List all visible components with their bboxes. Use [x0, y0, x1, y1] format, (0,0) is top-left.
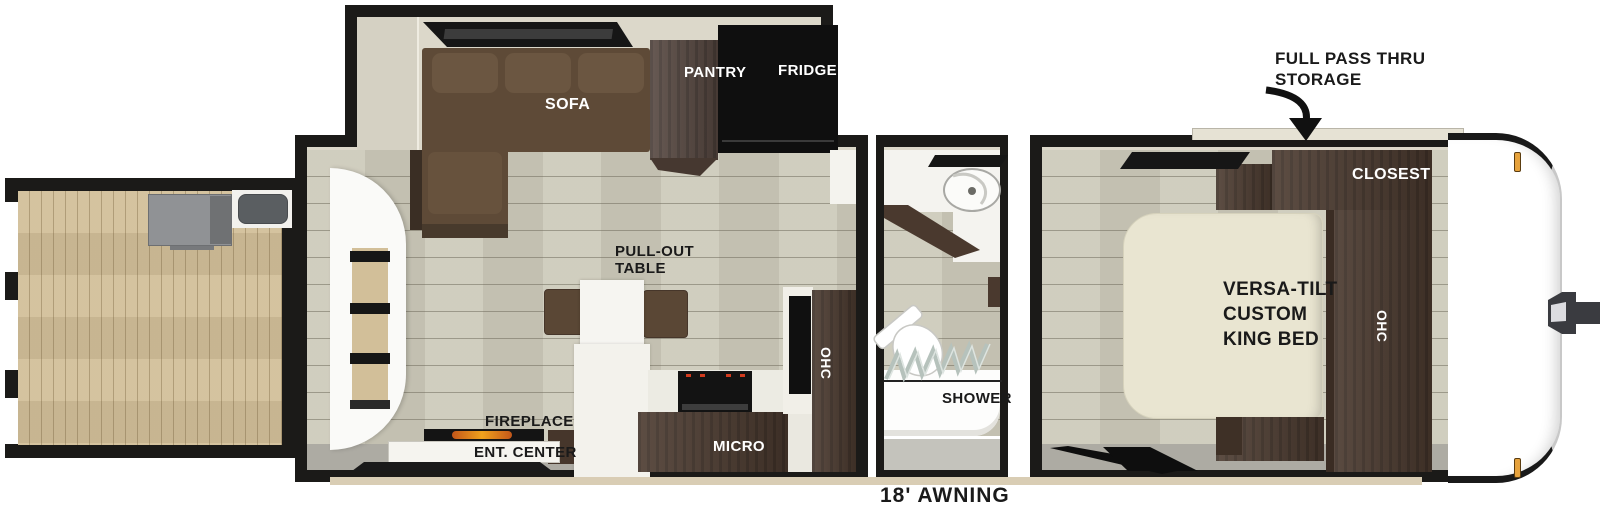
fireplace-flame	[452, 431, 512, 439]
outdoor-grill-base	[170, 246, 214, 250]
rear-door-glass	[352, 248, 388, 408]
king-bed-label: VERSA-TILTCUSTOMKING BED	[1123, 277, 1323, 327]
pass-thru-hatch	[1192, 128, 1464, 140]
front-cap	[1448, 133, 1562, 483]
stove-knob	[740, 374, 745, 377]
stove-front	[682, 404, 748, 410]
stove-knob	[700, 374, 705, 377]
pull-out-table	[580, 280, 644, 346]
bath-vanity-column	[953, 210, 1000, 262]
awning-rail	[330, 477, 1422, 485]
rear-door-bar	[350, 251, 390, 262]
sofa-back-cushion	[505, 53, 571, 93]
outdoor-grill-side	[210, 196, 231, 244]
storage-arrow	[1266, 90, 1306, 122]
stove-knob	[726, 374, 731, 377]
wardrobe-shadow-edge	[1326, 210, 1334, 472]
rear-door-bar	[350, 353, 390, 364]
fridge	[718, 25, 838, 153]
storage-annotation: FULL PASS THRUSTORAGE	[1160, 48, 1390, 69]
deck-railing-gap	[5, 300, 18, 370]
pull-out-table-label: PULL-OUTTABLE	[545, 243, 685, 260]
floorplan: SOFA PANTRY FRIDGE PULL-OUTTABLE MICRO O…	[0, 0, 1600, 510]
bath-sink-drain	[968, 187, 976, 195]
shower-floor-edge	[884, 436, 1000, 470]
outdoor-sink	[238, 194, 288, 224]
deck-railing-gap	[5, 398, 18, 444]
ent-center-base	[352, 462, 552, 471]
dinette-chair	[643, 290, 688, 338]
rear-door-bar	[350, 303, 390, 314]
marker-light	[1514, 152, 1521, 172]
fridge-vent-line	[722, 140, 834, 142]
nightstand	[1216, 164, 1274, 210]
sofa-back-cushion	[578, 53, 644, 93]
stove-knob	[686, 374, 691, 377]
pantry-cabinet	[650, 40, 718, 160]
sofa-back-cushion	[432, 53, 498, 93]
kitchen-floor-gap	[788, 412, 813, 472]
slide-left-wall-face	[357, 17, 419, 150]
sofa-chaise-base	[422, 224, 508, 238]
kitchen-ohc-cabinet	[812, 290, 856, 472]
sofa-side-panel	[410, 150, 422, 230]
bath-cabinet-small	[988, 277, 1000, 307]
deck-railing-gap	[5, 202, 18, 272]
bed-bench-box	[1216, 417, 1242, 455]
kitchen-return-wall	[830, 150, 856, 204]
sofa-chaise-cushion	[428, 152, 502, 214]
rear-door-bar	[350, 400, 390, 409]
kitchen-appliance	[789, 296, 811, 394]
marker-light	[1514, 458, 1521, 478]
